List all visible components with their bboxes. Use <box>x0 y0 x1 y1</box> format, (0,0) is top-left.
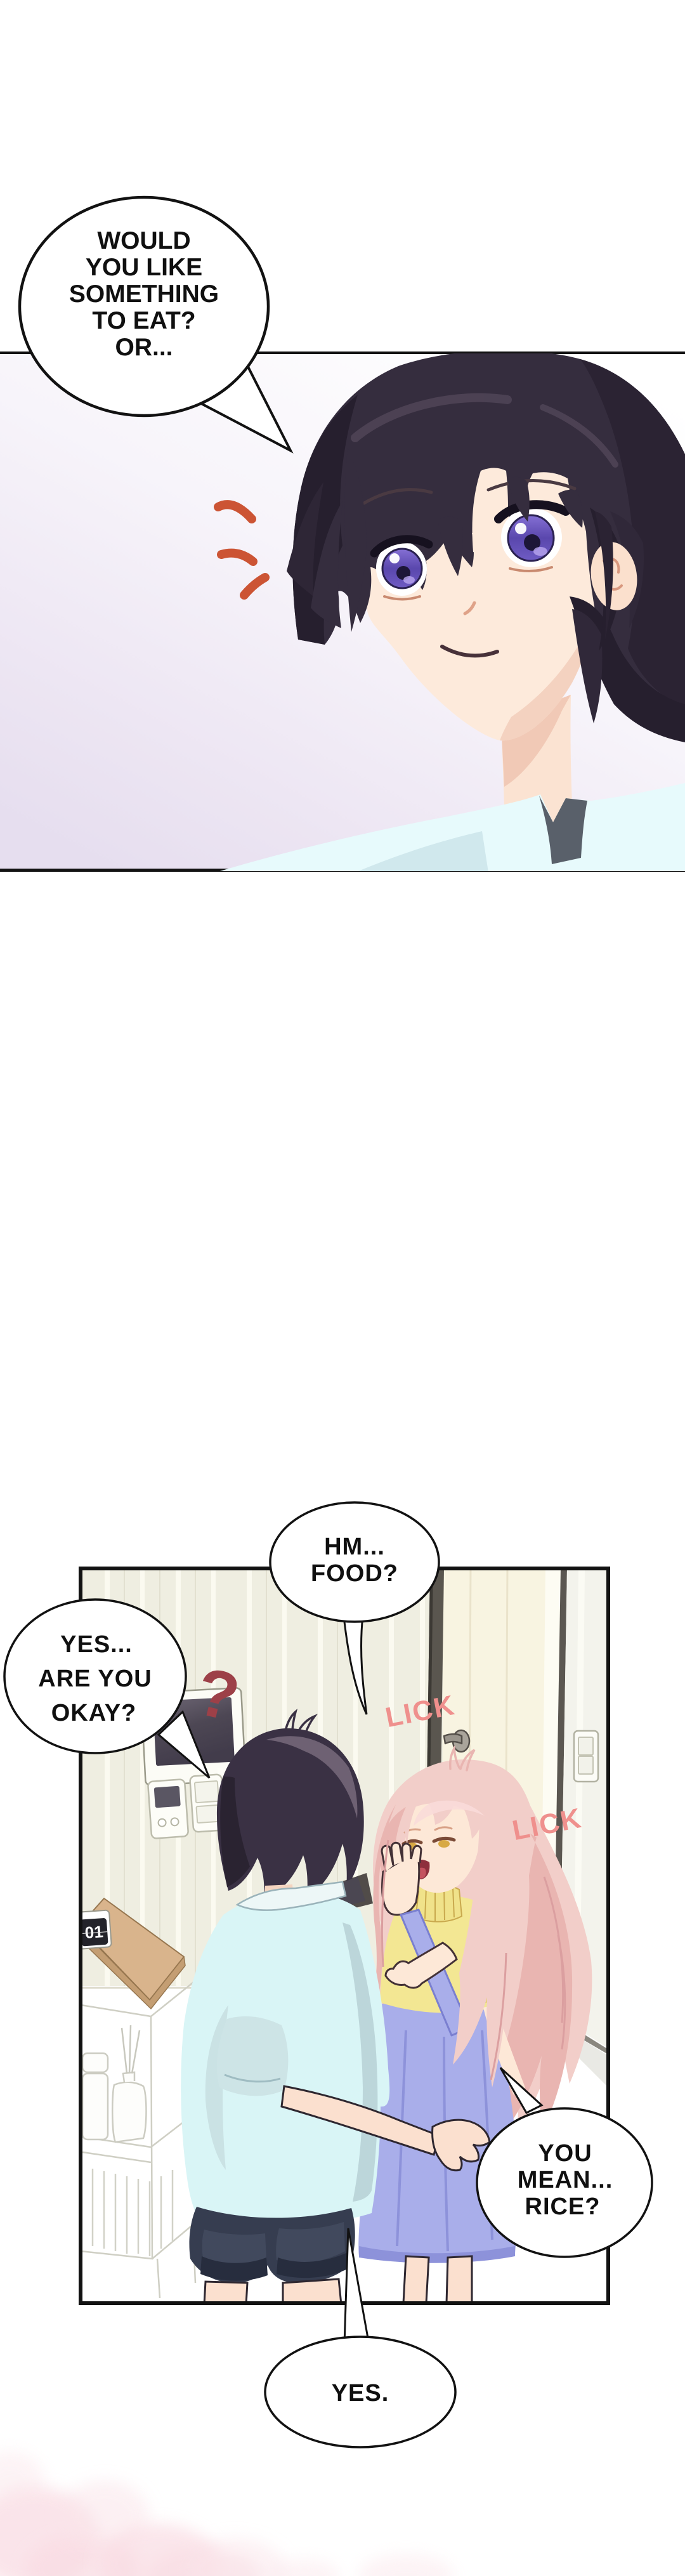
svg-text:WOULD: WOULD <box>97 227 190 254</box>
svg-text:OKAY?: OKAY? <box>51 1700 137 1726</box>
svg-text:YOU: YOU <box>538 2140 592 2167</box>
svg-text:RICE?: RICE? <box>525 2193 601 2220</box>
svg-text:SOMETHING: SOMETHING <box>69 280 219 308</box>
svg-text:YES...: YES... <box>60 1631 133 1658</box>
svg-text:OR...: OR... <box>115 334 173 361</box>
svg-text:FOOD?: FOOD? <box>311 1560 398 1587</box>
svg-text:TO EAT?: TO EAT? <box>92 307 195 334</box>
svg-text:YES.: YES. <box>332 2380 389 2407</box>
svg-text:MEAN...: MEAN... <box>518 2167 613 2193</box>
svg-text:YOU LIKE: YOU LIKE <box>86 254 202 281</box>
svg-text:ARE YOU: ARE YOU <box>38 1666 152 1692</box>
svg-text:HM...: HM... <box>324 1534 385 1560</box>
